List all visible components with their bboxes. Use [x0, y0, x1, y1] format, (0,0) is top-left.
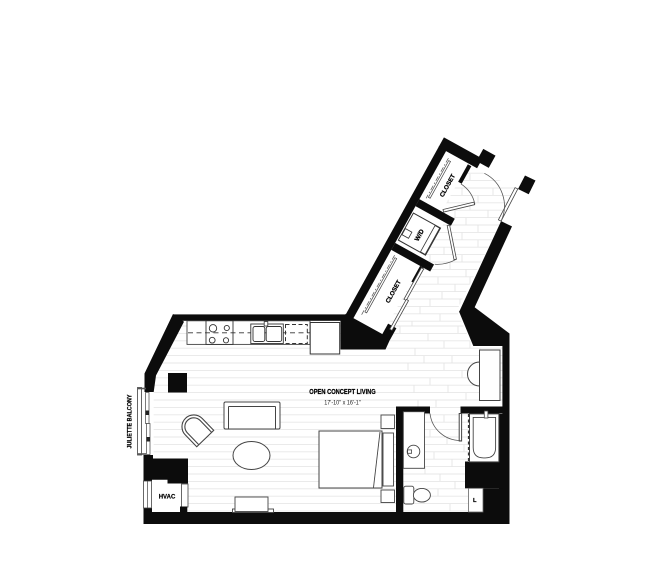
svg-text:HVAC: HVAC [159, 495, 176, 501]
svg-text:L: L [473, 498, 477, 504]
svg-text:OPEN CONCEPT LIVING: OPEN CONCEPT LIVING [309, 387, 376, 396]
svg-text:17'-10" x 16'-1": 17'-10" x 16'-1" [324, 401, 361, 407]
svg-text:JULIETTE BALCONY: JULIETTE BALCONY [128, 395, 134, 449]
